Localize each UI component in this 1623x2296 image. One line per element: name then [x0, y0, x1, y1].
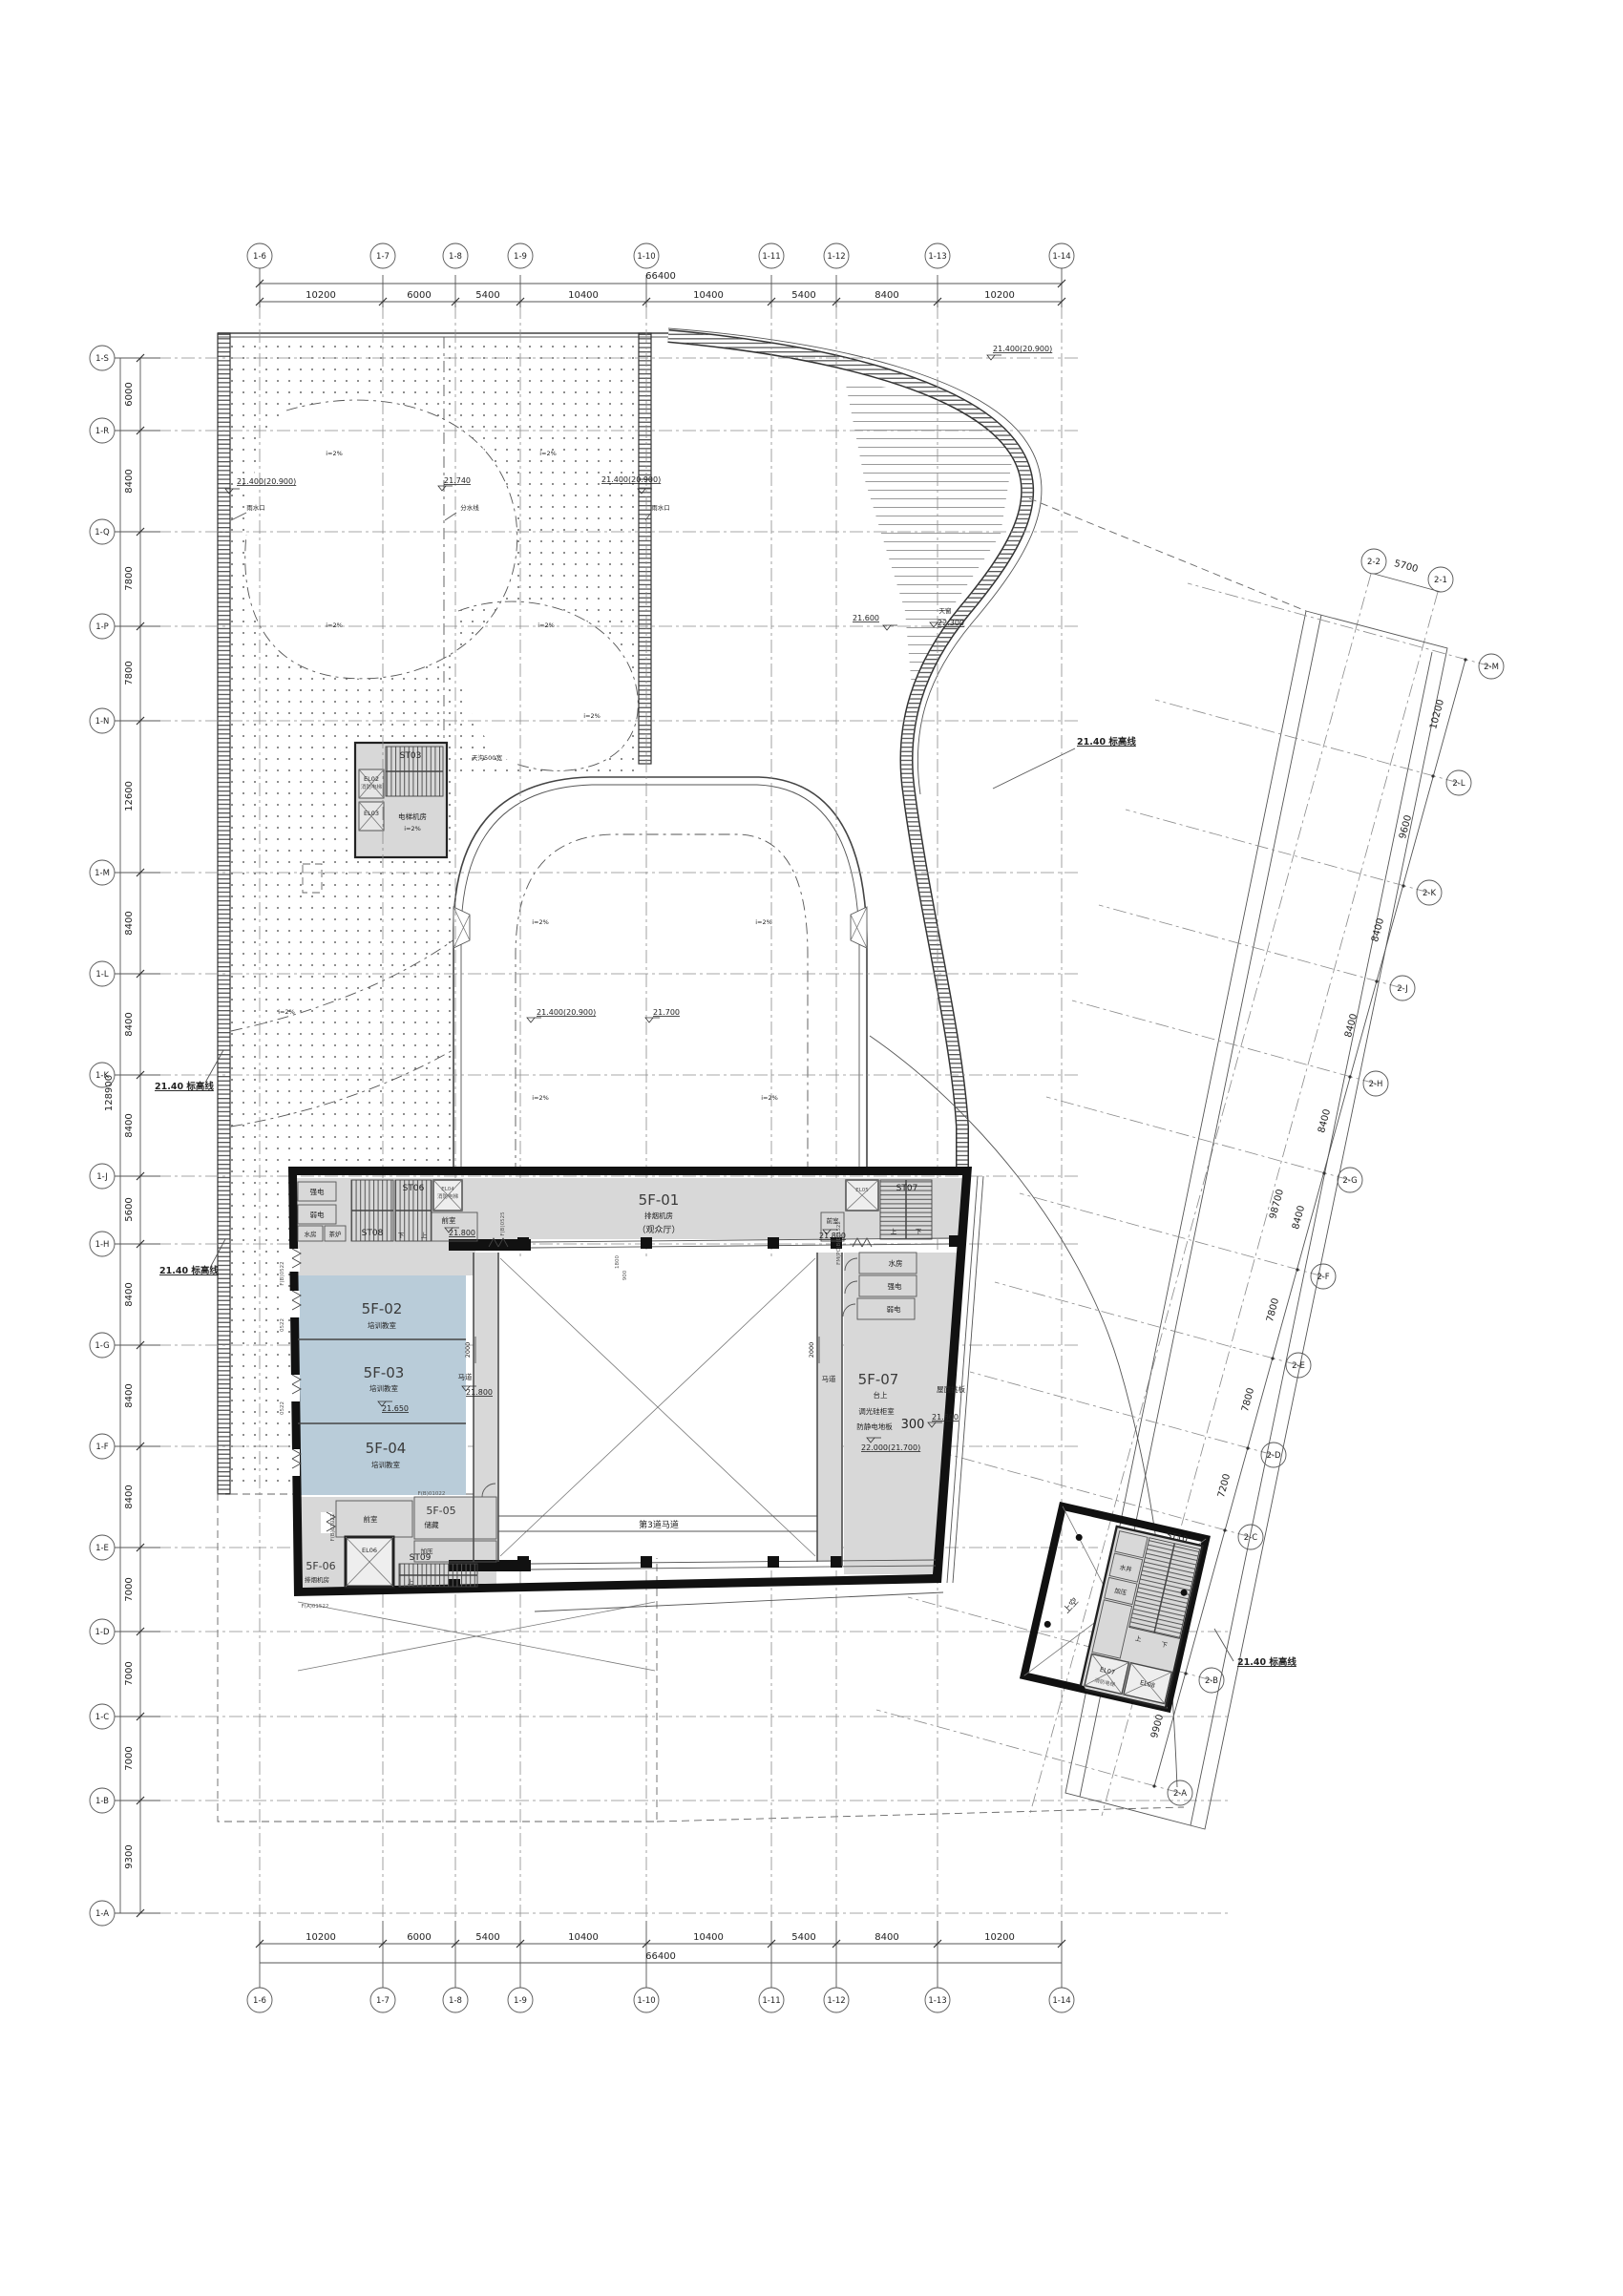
grid-bubble-label: 1-10 — [637, 1996, 655, 2006]
dim-1800: 1800 — [615, 1255, 621, 1269]
room-5f07-l3: 防静电地板 — [856, 1422, 893, 1431]
grid-bubble-label: 1-C — [95, 1713, 109, 1722]
upper-lobby — [296, 1243, 475, 1275]
auditorium-dome — [453, 777, 867, 1174]
grid-bubble-label: 1-P — [95, 622, 109, 632]
catwalk-label-w: 马道 — [458, 1372, 473, 1381]
dim-left-6: 8400 — [124, 911, 135, 935]
grid-bubble-label: 1-S — [95, 354, 109, 364]
room-5f07-l2: 调光硅柜室 — [858, 1406, 895, 1416]
grid-bubble-label: 2-A — [1173, 1789, 1187, 1799]
dim-top-4: 10400 — [568, 290, 599, 301]
mid-facade-band — [639, 333, 651, 764]
grid-bubble-label: 2-F — [1317, 1273, 1329, 1282]
dim-right-4: 8400 — [1343, 1013, 1360, 1039]
room-5f01-note: （观众厅） — [637, 1225, 680, 1235]
up-label: 上 — [421, 1231, 428, 1239]
grid-bubble-label: 1-9 — [514, 1996, 527, 2006]
door-tag: F(B)01021 — [330, 1514, 336, 1542]
dim-left-16: 9300 — [124, 1844, 135, 1868]
door-tag: 0522 — [280, 1401, 285, 1415]
elevation-line-label-w2: 21.40 标高线 — [159, 1265, 219, 1276]
slope-label: i=2% — [532, 918, 549, 926]
room-5f07-level: 22.000(21.700) — [861, 1443, 920, 1452]
dim-left-1: 6000 — [124, 382, 135, 406]
dim-right-1: 10200 — [1428, 699, 1446, 731]
grid-bubble-label: 1-K — [95, 1071, 109, 1081]
dim-top-7: 8400 — [875, 290, 898, 301]
dim-right-top: 5700 — [1393, 558, 1419, 575]
front-room-s: 前室 — [364, 1514, 378, 1524]
up-label: 上 — [408, 1577, 414, 1586]
stair-st07-label: ST07 — [896, 1184, 918, 1193]
dim-left-2: 8400 — [124, 469, 135, 493]
grid-bubble-label: 1-6 — [253, 1996, 266, 2006]
room-chalu: 茶炉 — [329, 1230, 343, 1238]
dim-left-5: 12600 — [124, 781, 135, 811]
door-tag: 0522 — [280, 1318, 285, 1332]
room-5f05-code: 5F-05 — [426, 1505, 455, 1517]
lift-el02-label: EL02 — [364, 775, 379, 783]
dim-bot-2: 6000 — [407, 1932, 431, 1943]
room-5f06-name: 排烟机房 — [305, 1575, 329, 1584]
dim-top-1: 10200 — [306, 290, 336, 301]
stair-st09-label: ST09 — [410, 1553, 432, 1563]
detached-building: 上空 水井 加压 ST10 上 下 EL07 消防电梯 EL08 — [1020, 1502, 1211, 1713]
dim-left-12: 8400 — [124, 1485, 135, 1508]
slope-label: i=2% — [326, 450, 343, 457]
grid-bubble-label: 1-L — [95, 970, 108, 979]
dim-2000-e: 2000 — [808, 1342, 815, 1359]
grid-bubble-label: 1-13 — [928, 252, 946, 262]
grid-bubble-label: 1-8 — [449, 1996, 462, 2006]
down-label: 下 — [398, 1232, 405, 1239]
floor-plan-canvas: ST03 EL02 消防电梯 EL03 电梯机房 i=2% 66400 1020… — [0, 0, 1623, 2296]
level-21600: 21.600 — [853, 614, 879, 622]
catwalk-west — [474, 1253, 498, 1562]
room-ruodian-e: 弱电 — [887, 1304, 901, 1314]
grid-bubble-label: 1-R — [95, 427, 109, 436]
dim-top-6: 5400 — [791, 290, 815, 301]
level-21800: 21.800 — [449, 1229, 475, 1237]
dim-right-9: 7200 — [1216, 1473, 1233, 1499]
grid-bubble-label: 1-F — [95, 1443, 108, 1452]
dim-top-overall: 66400 — [645, 271, 676, 282]
dim-top-5: 10400 — [693, 290, 724, 301]
room-qiangdian: 强电 — [310, 1187, 325, 1196]
grid-bubble-label: 1-7 — [376, 1996, 390, 2006]
level-21740: 21.740 — [444, 476, 471, 485]
dim-bot-1: 10200 — [306, 1932, 336, 1943]
room-shuifang-e: 水房 — [889, 1258, 903, 1268]
dim-left-13: 7000 — [124, 1577, 135, 1601]
level-21400-m: 21.400(20.900) — [601, 475, 661, 484]
dim-bot-6: 5400 — [791, 1932, 815, 1943]
slope-label: i=2% — [761, 1094, 778, 1102]
dim-left-3: 7800 — [124, 566, 135, 590]
grid-bubble-label: 2-M — [1484, 663, 1499, 672]
room-5f01-name: 排烟机房 — [644, 1211, 673, 1220]
grid-bubble-label: 1-B — [95, 1797, 109, 1806]
dim-bot-4: 10400 — [568, 1932, 599, 1943]
dim-right-8: 7800 — [1240, 1387, 1256, 1413]
ridge-label: 分水线 — [460, 503, 479, 512]
up-label: 上 — [891, 1227, 897, 1235]
grid-bubble-label: 2-L — [1452, 779, 1465, 789]
room-5f02-name: 培训教室 — [368, 1320, 396, 1330]
slope-label: i=2% — [278, 1008, 295, 1016]
grid-bubble-label: 1-6 — [253, 252, 266, 262]
dim-right-overall: 98700 — [1268, 1189, 1286, 1221]
grid-bubble-label: 1-8 — [449, 252, 462, 262]
elevation-line-label-se: 21.40 标高线 — [1237, 1656, 1296, 1668]
room-ruodian: 弱电 — [310, 1210, 325, 1219]
door-tag: F(B)01022 — [418, 1491, 446, 1497]
fire-lift-label: 消防电梯 — [437, 1192, 459, 1200]
room-5f03-code: 5F-03 — [364, 1364, 405, 1381]
down-label: 下 — [916, 1228, 922, 1235]
catwalk3-label: 第3道马道 — [639, 1519, 679, 1530]
dim-top-8: 10200 — [984, 290, 1015, 301]
rain-inlet-w: 雨水口 — [246, 503, 265, 512]
room-qiangdian-e: 强电 — [888, 1281, 902, 1291]
dim-bot-8: 10200 — [984, 1932, 1015, 1943]
dim-left-10: 8400 — [124, 1282, 135, 1306]
grid-bubble-label: 2-1 — [1434, 576, 1447, 585]
door-tag: FM(PC)B(D)1522 — [836, 1221, 842, 1265]
grid-bubble-label: 1-13 — [928, 1996, 946, 2006]
lift-el06-label: EL06 — [362, 1547, 377, 1554]
dim-right-11: 9900 — [1149, 1714, 1166, 1739]
grid-bubble-label: 1-M — [95, 869, 110, 878]
fire-lift-label: 消防电梯 — [361, 783, 383, 790]
grid-bubble-label: 1-D — [95, 1628, 109, 1637]
room-5f07-num: 300 — [901, 1418, 925, 1432]
west-facade-band — [218, 333, 230, 1494]
dim-2000-w: 2000 — [464, 1342, 472, 1359]
gutter-label: 天沟500宽 — [472, 753, 502, 762]
grid-bubble-label: 1-14 — [1052, 252, 1070, 262]
grid-bubble-label: 1-11 — [762, 1996, 780, 2006]
dim-left-4: 7800 — [124, 661, 135, 685]
grid-bubble-label: 1-12 — [827, 252, 845, 262]
grid-bubble-label: 1-10 — [637, 252, 655, 262]
dimension-chain-left: 6000 8400 7800 7800 12600 8400 8400 8400… — [90, 346, 160, 1926]
main-building: 强电 弱电 水房 茶炉 ST08 ST06 下 上 EL04 消防电梯 前室 2… — [280, 1167, 983, 1611]
room-5f05-name: 储藏 — [425, 1520, 439, 1529]
grid-bubble-label: 1-E — [95, 1544, 109, 1553]
dim-bot-3: 5400 — [475, 1932, 499, 1943]
grid-bubble-label: 2-E — [1292, 1361, 1305, 1371]
slope-label: i=2% — [583, 712, 601, 720]
dim-right-2: 9600 — [1398, 814, 1414, 840]
room-5f07-l1: 台上 — [874, 1390, 888, 1400]
dim-left-11: 8400 — [124, 1383, 135, 1407]
grid-bubble-label: 1-J — [96, 1172, 107, 1182]
dimension-chain-bottom: 10200 6000 5400 10400 10400 5400 8400 10… — [247, 1921, 1074, 2012]
door-tag: F(B)0525 — [500, 1211, 506, 1236]
roof-lift-structure: ST03 EL02 消防电梯 EL03 电梯机房 i=2% — [355, 743, 447, 857]
void-above-label: 上空 — [1061, 1595, 1081, 1615]
drawing-sheet: { "colors": {"classroom_blue": "#b9ccd9"… — [0, 0, 1623, 2296]
dim-bot-5: 10400 — [693, 1932, 724, 1943]
dim-right-3: 8400 — [1370, 917, 1386, 943]
grid-bubble-label: 1-N — [95, 717, 110, 727]
dim-right-5: 8400 — [1317, 1108, 1333, 1134]
room-5f04-code: 5F-04 — [366, 1440, 407, 1457]
stair-st03-label: ST03 — [400, 751, 422, 761]
grid-bubble-label: 1-14 — [1052, 1996, 1070, 2006]
dim-left-8: 8400 — [124, 1113, 135, 1137]
level-21650: 21.650 — [382, 1404, 409, 1413]
slope-label: i=2% — [539, 450, 557, 457]
level-21800: 21.800 — [466, 1388, 493, 1397]
grid-bubble-label: 1-9 — [514, 252, 527, 262]
dim-left-9: 5600 — [124, 1197, 135, 1221]
room-5f07-code: 5F-07 — [858, 1371, 899, 1388]
level-21400-dome: 21.400(20.900) — [537, 1008, 596, 1017]
grid-bubble-label: 2-B — [1205, 1676, 1218, 1686]
dim-right-6: 8400 — [1291, 1205, 1307, 1231]
grid-bubble-label: 2-H — [1369, 1080, 1383, 1089]
catwalk-east — [817, 1253, 842, 1562]
lift-el05-label: EL05 — [855, 1188, 869, 1193]
level-21400-w: 21.400(20.900) — [237, 477, 296, 486]
stair-st08-label: ST08 — [362, 1229, 384, 1238]
grid-bubble-label: 1-A — [95, 1909, 109, 1919]
level-21400-ne: 21.400(20.900) — [993, 345, 1052, 353]
slope-label: i=2% — [326, 621, 343, 629]
grid-bubble-label: 2-K — [1423, 889, 1436, 898]
lift-machine-room-label: 电梯机房 — [398, 811, 427, 821]
room-5f02-code: 5F-02 — [362, 1300, 403, 1317]
dim-bot-overall: 66400 — [645, 1951, 676, 1962]
door-tag: F(A)01522 — [302, 1604, 329, 1610]
dim-top-2: 6000 — [407, 290, 431, 301]
dim-top-3: 5400 — [475, 290, 499, 301]
grid-bubble-label: 1-Q — [95, 528, 110, 537]
grid-bubble-label: 1-7 — [376, 252, 390, 262]
front-room-n: 前室 — [442, 1215, 456, 1225]
slope-label: i=2% — [755, 918, 772, 926]
room-5f04-name: 培训教室 — [371, 1460, 400, 1469]
grid-bubble-label: 1-12 — [827, 1996, 845, 2006]
catwalk-label-e: 马道 — [822, 1374, 836, 1383]
grid-bubble-label: 2-2 — [1367, 558, 1381, 567]
dim-right-7: 7800 — [1265, 1297, 1281, 1323]
grid-bubble-label: 1-G — [95, 1341, 109, 1351]
skylight-label: 天窗 — [939, 606, 952, 615]
dim-900: 900 — [622, 1270, 628, 1280]
grid-bubble-label: 2-G — [1342, 1176, 1357, 1186]
level-21700: 21.700 — [653, 1008, 680, 1017]
room-5f01-code: 5F-01 — [639, 1191, 680, 1209]
dim-left-15: 7000 — [124, 1746, 135, 1770]
dim-left-14: 7000 — [124, 1661, 135, 1685]
level-21800: 21.800 — [932, 1413, 959, 1422]
room-5f06-code: 5F-06 — [306, 1560, 335, 1572]
dimension-chain-top: 66400 10200 6000 5400 10400 10400 5400 8… — [247, 243, 1074, 307]
stair-st06-label: ST06 — [403, 1184, 425, 1193]
elevation-line-label-ne: 21.40 标高线 — [1077, 736, 1136, 748]
dim-left-7: 8400 — [124, 1012, 135, 1036]
grid-bubble-label: 2-C — [1244, 1533, 1257, 1543]
slope-label: i=2% — [537, 621, 555, 629]
level-22300: 22.300 — [938, 619, 964, 627]
lift-el03-label: EL03 — [364, 810, 379, 817]
room-5f03-name: 培训教室 — [369, 1383, 398, 1393]
lift-el04-label: EL04 — [441, 1187, 454, 1192]
grid-bubble-label: 2-D — [1266, 1451, 1280, 1461]
slope-label: i=2% — [532, 1094, 549, 1102]
grid-bubble-label: 1-11 — [762, 252, 780, 262]
dim-bot-7: 8400 — [875, 1932, 898, 1943]
rain-inlet-m: 雨水口 — [651, 503, 670, 512]
door-tag: F(B)0522 — [280, 1261, 285, 1285]
grid-bubble-label: 2-J — [1397, 984, 1407, 994]
grid-bubble-label: 1-H — [95, 1240, 110, 1250]
room-shuifang: 水房 — [305, 1230, 317, 1238]
slope-label: i=2% — [404, 825, 421, 832]
